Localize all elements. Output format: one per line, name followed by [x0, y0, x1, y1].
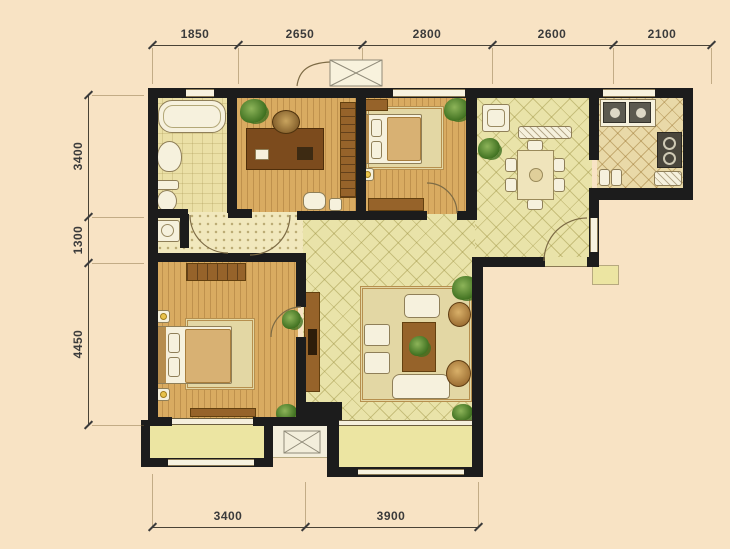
- study-desk: [246, 128, 324, 170]
- wall-master-bottom-b: [253, 417, 298, 426]
- wall-hall-top-a: [148, 209, 188, 218]
- dim-label-left-2: 1300: [71, 210, 85, 270]
- extension-line: [92, 263, 144, 264]
- floor-plan: 1850 2650 2800 2600 2100 3400 1300 4450 …: [0, 0, 730, 549]
- dining-cabinet: [518, 126, 572, 139]
- balcony-left-floor: [149, 423, 266, 461]
- washbasin: [157, 141, 182, 172]
- bathtub: [158, 100, 226, 133]
- wall-hall-top-b: [228, 209, 252, 218]
- extension-line: [152, 474, 153, 526]
- desk-monitor: [297, 147, 313, 160]
- loveseat: [404, 294, 440, 318]
- dining-table: [517, 150, 554, 200]
- study-side-table: [329, 198, 342, 211]
- window-balcony-right: [358, 469, 464, 475]
- sliding-door-living-balcony: [339, 420, 472, 426]
- bedroom-2-pillow: [371, 141, 382, 159]
- master-pillow: [168, 333, 180, 353]
- wall-bath-study: [227, 96, 237, 213]
- master-pillow: [168, 357, 180, 377]
- washing-machine-drum: [161, 224, 174, 237]
- refrigerator-inner: [487, 109, 505, 127]
- study-bookshelf: [340, 102, 356, 198]
- master-tv-stand: [190, 408, 256, 417]
- wall-bedroom2-dining: [466, 96, 477, 217]
- wall-laundry-right: [180, 214, 189, 248]
- extension-line: [92, 95, 144, 96]
- wall-master-top: [148, 253, 306, 262]
- tv-icon: [308, 329, 317, 355]
- dim-label-top-2: 2650: [265, 27, 335, 41]
- dim-label-top-3: 2800: [392, 27, 462, 41]
- ac-platform-floor: [272, 422, 328, 458]
- window-bedroom-2: [393, 89, 465, 97]
- wall-kitchen-left: [589, 98, 599, 160]
- study-ottoman: [303, 192, 326, 210]
- tv-cabinet: [304, 292, 320, 392]
- extension-line: [92, 217, 144, 218]
- wall-master-bottom-a: [148, 417, 172, 426]
- sofa: [392, 374, 450, 399]
- extension-line: [711, 48, 712, 84]
- table-plate-icon: [529, 168, 543, 182]
- dining-chair: [553, 178, 565, 192]
- sink-basin-icon: [610, 108, 620, 118]
- extension-line: [613, 48, 614, 84]
- kitchen-counter-corner: [654, 171, 682, 186]
- balcony-right-floor: [338, 421, 473, 470]
- dim-label-top-1: 1850: [160, 27, 230, 41]
- kitchen-sink-right: [629, 102, 651, 123]
- bathtub-inner: [163, 105, 221, 128]
- dim-label-top-4: 2600: [517, 27, 587, 41]
- armchair: [364, 352, 390, 374]
- entry-step: [592, 265, 619, 285]
- kitchen-sink-left: [603, 102, 626, 123]
- master-bed: [156, 326, 232, 384]
- dim-label-bottom-1: 3400: [193, 509, 263, 523]
- dim-label-top-5: 2100: [627, 27, 697, 41]
- ac-platform-top-box: [330, 60, 382, 86]
- x-mark-icon: [330, 60, 382, 86]
- extension-line: [152, 48, 153, 84]
- x-mark-icon: [330, 60, 382, 86]
- wall-master-right-lower: [296, 337, 306, 407]
- wicker-chair: [446, 360, 471, 387]
- window-dining: [590, 218, 598, 252]
- window-bathroom: [186, 89, 214, 97]
- lamp-icon: [160, 313, 167, 320]
- sink-basin-icon: [636, 108, 646, 118]
- master-headboard: [157, 327, 166, 383]
- window-kitchen: [603, 89, 655, 97]
- wall-balcony-left-right: [264, 420, 273, 467]
- wall-hall-top-c: [297, 211, 427, 220]
- master-nightstand: [156, 310, 170, 323]
- bedroom-2-blanket: [387, 117, 421, 161]
- dim-label-left-3: 4450: [71, 314, 85, 374]
- dining-chair: [505, 158, 517, 172]
- kitchen-cabinet: [611, 169, 622, 186]
- dim-label-bottom-2: 3900: [356, 509, 426, 523]
- dining-chair: [553, 158, 565, 172]
- extension-line: [238, 48, 239, 84]
- wall-kitchen-right: [683, 88, 693, 200]
- bedroom-2-pillow: [371, 119, 382, 137]
- master-wardrobe: [186, 263, 246, 281]
- extension-line: [92, 425, 144, 426]
- dim-label-left-1: 3400: [71, 126, 85, 186]
- toilet-tank: [155, 180, 179, 190]
- window-balcony-left: [168, 459, 254, 466]
- burner-icon: [663, 152, 676, 165]
- sliding-door-master-balcony: [172, 418, 253, 425]
- extension-line: [492, 48, 493, 84]
- wall-study-bedroom2: [356, 96, 366, 213]
- kitchen-cabinet: [599, 169, 610, 186]
- entry-door-opening: [545, 257, 587, 267]
- desk-paper: [255, 149, 269, 160]
- master-plant: [282, 310, 301, 329]
- armchair: [364, 324, 390, 346]
- extension-line: [362, 48, 363, 62]
- dim-tick: [474, 522, 483, 531]
- burner-icon: [663, 137, 676, 150]
- wall-master-right-upper: [296, 253, 306, 307]
- lamp-icon: [160, 391, 167, 398]
- extension-line: [478, 482, 479, 526]
- wall-living-right: [472, 257, 483, 477]
- wall-kitchen-bottom: [589, 188, 693, 200]
- wicker-chair: [448, 302, 471, 327]
- extension-line: [305, 482, 306, 526]
- master-blanket: [185, 329, 231, 383]
- dining-chair: [527, 199, 543, 210]
- platform-curve: [297, 62, 330, 86]
- bedroom-2-bed: [360, 114, 422, 164]
- bedroom-2-dresser: [368, 198, 424, 211]
- master-nightstand: [156, 388, 170, 401]
- refrigerator: [482, 104, 510, 132]
- wall-hall-top-d: [457, 211, 477, 220]
- study-chair: [272, 110, 300, 134]
- dimension-line-bottom: [152, 527, 478, 528]
- kitchen-stove: [657, 132, 682, 168]
- dining-chair: [505, 178, 517, 192]
- washing-machine: [155, 220, 180, 242]
